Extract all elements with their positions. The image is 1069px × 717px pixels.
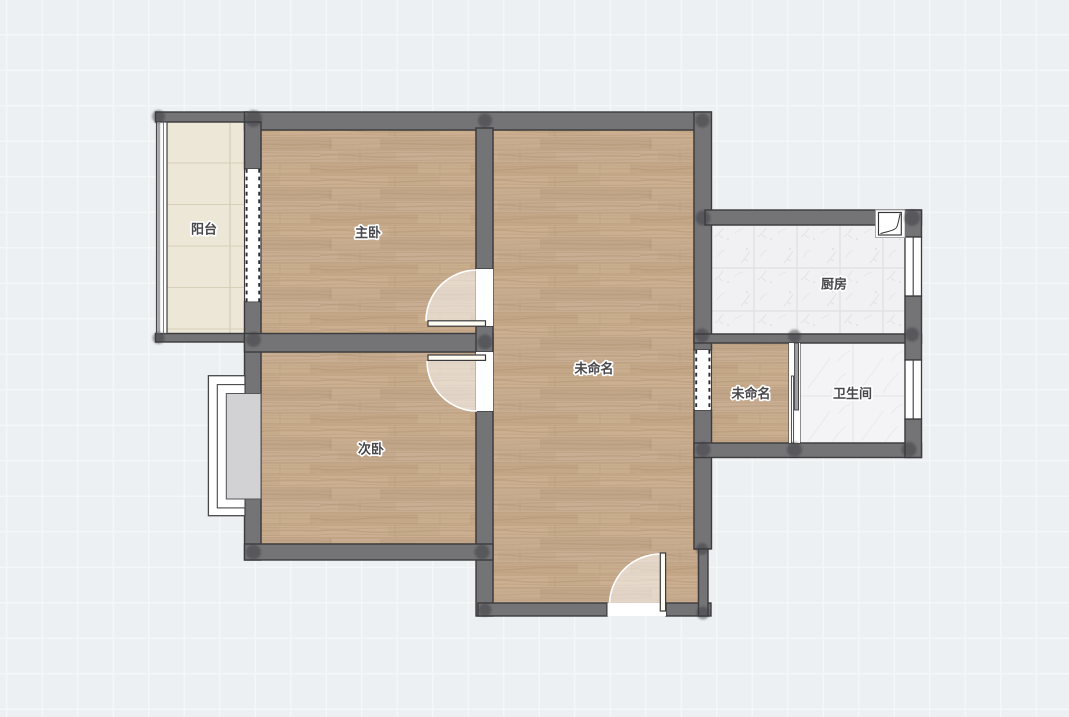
svg-text:卫生间: 卫生间 [833, 386, 872, 401]
svg-text:未命名: 未命名 [730, 386, 770, 401]
svg-text:未命名: 未命名 [573, 361, 613, 376]
svg-text:厨房: 厨房 [821, 277, 847, 292]
svg-text:次卧: 次卧 [358, 442, 384, 457]
svg-text:阳台: 阳台 [191, 222, 217, 237]
svg-text:主卧: 主卧 [355, 225, 381, 240]
